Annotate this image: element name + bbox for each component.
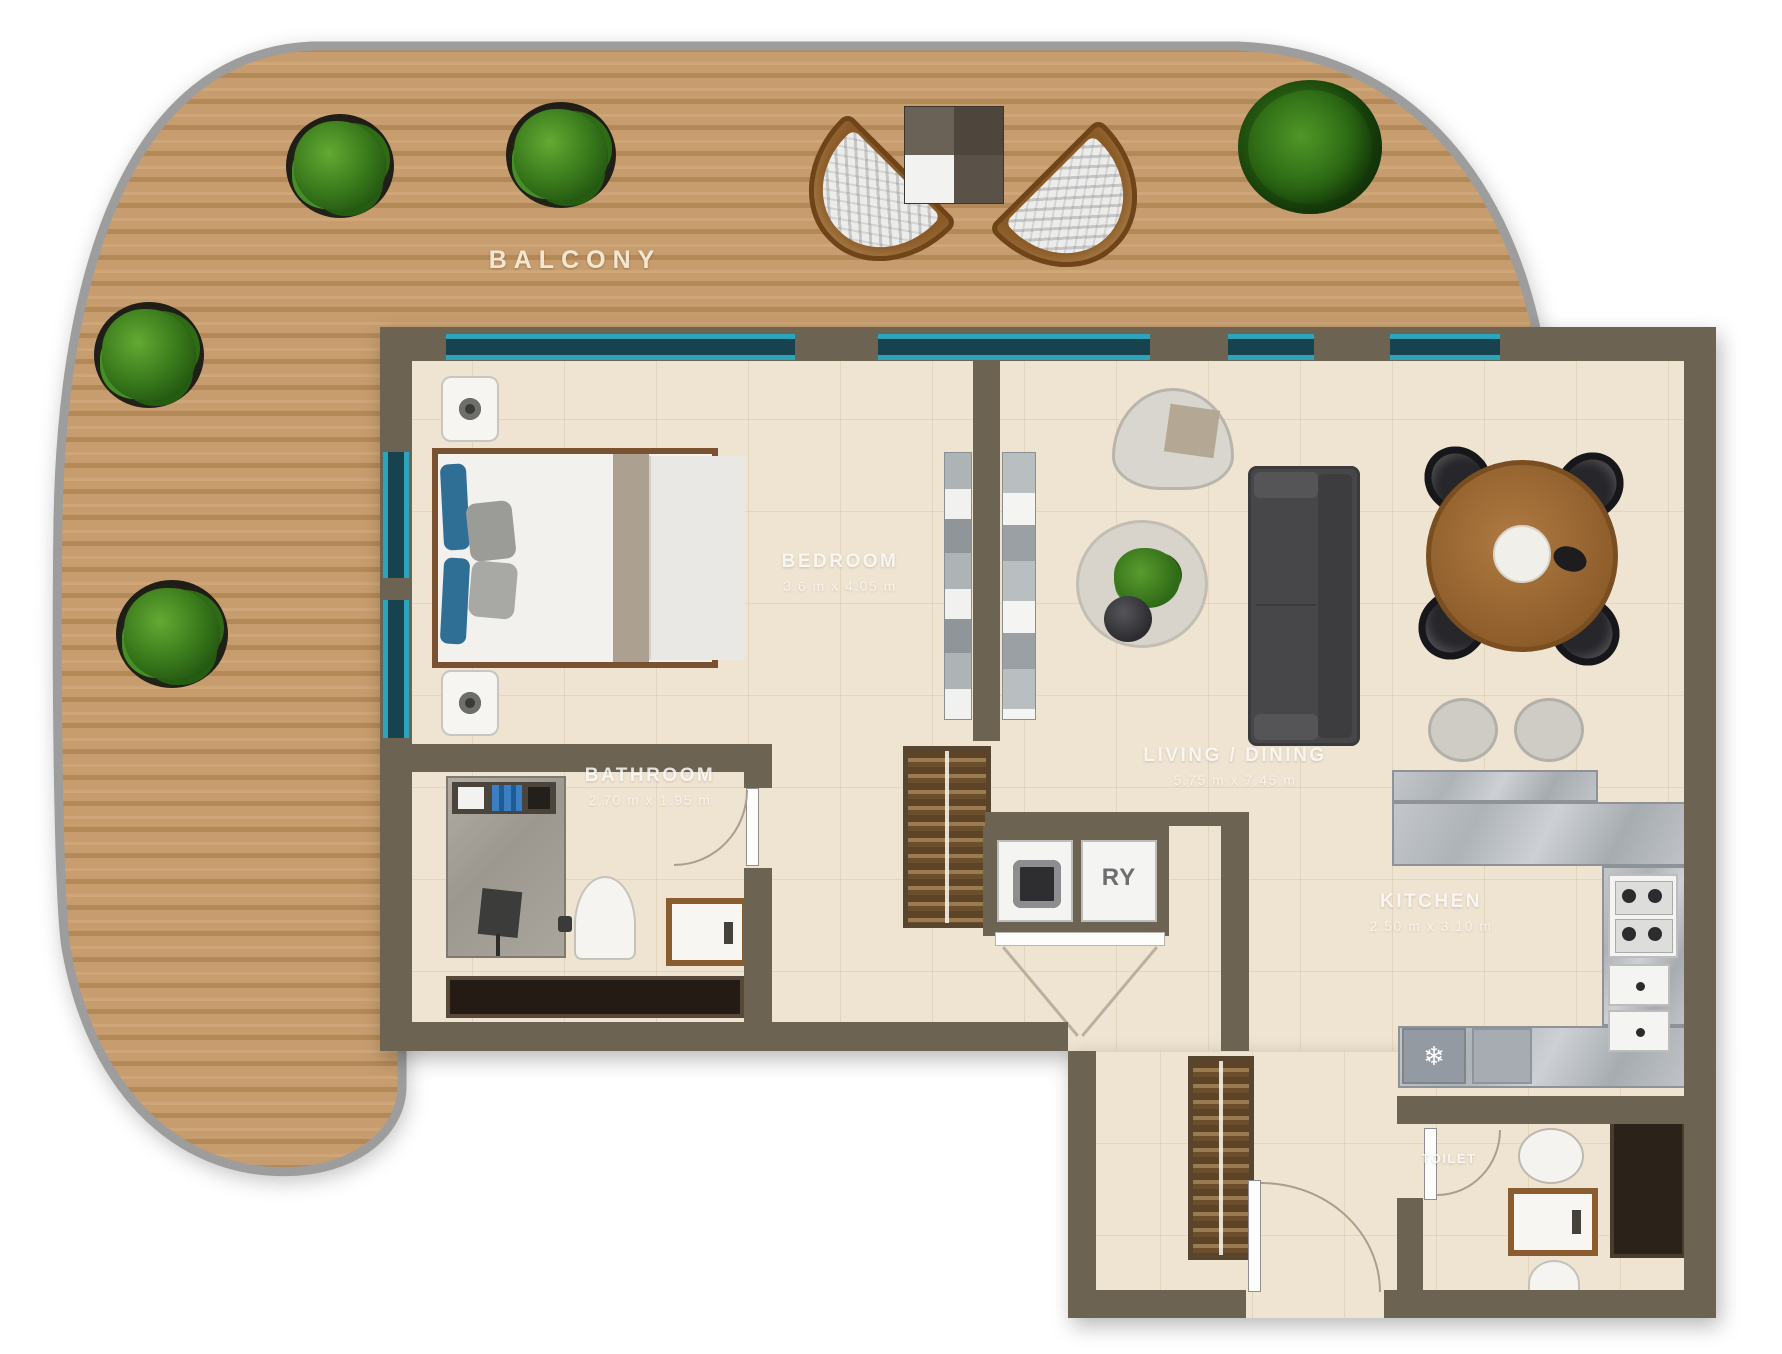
living-name: LIVING / DINING	[1143, 745, 1326, 766]
kitchen-sink	[1608, 1010, 1670, 1052]
bathroom-cabinet	[446, 976, 744, 1018]
wall-bathroom-right	[744, 868, 772, 1022]
tv-console-living-side	[1002, 452, 1036, 720]
pouf	[1104, 596, 1152, 642]
window-living-2	[1228, 334, 1314, 360]
dryer-label: RY	[1083, 864, 1155, 892]
nightstand	[441, 376, 499, 442]
wall-laundry-top	[985, 812, 1249, 826]
potted-plant	[94, 302, 204, 408]
wall-extension-bottom	[1096, 1290, 1246, 1318]
wall-bottom-main	[410, 1022, 1068, 1051]
wall-kitchen-left	[1221, 812, 1249, 1051]
window-bedroom-side	[383, 600, 409, 738]
wall-toilet-left	[1397, 1198, 1423, 1290]
bar-stool	[1428, 698, 1498, 762]
balcony-label: BALCONY	[425, 246, 725, 275]
toilet-name: TOILET	[1422, 1151, 1477, 1166]
bedroom-dims: 3.6 m x 4.05 m	[700, 576, 980, 596]
kitchen-label: KITCHEN 2.50 m x 3.10 m	[1286, 888, 1576, 936]
bedroom-label: BEDROOM 3.6 m x 4.05 m	[700, 548, 980, 596]
dishwasher	[1472, 1028, 1532, 1084]
double-bed	[432, 448, 718, 668]
pillow-blue	[440, 557, 470, 644]
bathroom-vanity-sink	[666, 898, 748, 966]
faucet	[724, 922, 733, 944]
table-bowl	[1550, 542, 1590, 576]
washing-machine	[997, 840, 1073, 922]
pillow-gray	[465, 500, 517, 562]
bar-stool	[1514, 698, 1584, 762]
kitchen-sink	[1608, 964, 1670, 1006]
floor-plan: BALCONY	[0, 0, 1782, 1354]
window-living	[878, 334, 1150, 360]
snowflake-icon: ❄	[1423, 1041, 1445, 1071]
table-plate	[1493, 525, 1551, 583]
bathroom-dims: 2.70 m x 1.95 m	[505, 790, 795, 810]
toilet-flush	[558, 916, 572, 932]
nightstand	[441, 670, 499, 736]
wall-right	[1684, 361, 1716, 1318]
window-bedroom	[446, 334, 795, 360]
living-dims: 5.75 m x 7.45 m	[1090, 770, 1380, 790]
balcony-side-table	[904, 106, 1004, 204]
potted-plant	[286, 114, 394, 218]
toilet-vanity	[1508, 1188, 1598, 1256]
kitchen-name: KITCHEN	[1380, 891, 1482, 912]
sofa-backrest	[1318, 474, 1352, 738]
bedroom-name: BEDROOM	[782, 551, 899, 572]
faucet	[1572, 1210, 1581, 1234]
laundry-shelf	[995, 932, 1165, 946]
living-label: LIVING / DINING 5.75 m x 7.45 m	[1090, 742, 1380, 790]
bathroom-label: BATHROOM 2.70 m x 1.95 m	[505, 762, 795, 810]
toilet-label: TOILET	[1394, 1150, 1504, 1169]
kitchen-bar-counter	[1392, 770, 1598, 802]
large-bush-plant	[1238, 80, 1382, 214]
window-bedroom-side	[383, 452, 409, 578]
sofa-armrest	[1254, 714, 1318, 740]
pillow-gray	[468, 560, 519, 620]
entry-cabinet-louvered	[1188, 1056, 1254, 1260]
bathroom-name: BATHROOM	[585, 765, 715, 786]
window-dining	[1390, 334, 1500, 360]
potted-plant	[506, 102, 616, 208]
shower-head	[478, 888, 523, 938]
sofa-armrest	[1254, 472, 1318, 498]
entrance-door-leaf	[1248, 1180, 1261, 1292]
potted-plant	[116, 580, 228, 688]
wall-toilet-top	[1397, 1096, 1686, 1124]
fridge: ❄	[1402, 1028, 1466, 1084]
wardrobe-louvered	[903, 746, 991, 928]
cooktop	[1608, 874, 1678, 958]
dryer: RY	[1081, 840, 1157, 922]
armchair-cushion	[1164, 404, 1220, 458]
kitchen-dims: 2.50 m x 3.10 m	[1286, 916, 1576, 936]
round-basin	[1518, 1128, 1584, 1184]
wall-extension-left	[1068, 1051, 1096, 1318]
dining-table	[1426, 460, 1618, 652]
sofa	[1248, 466, 1360, 746]
wall-extension-bottom	[1384, 1290, 1684, 1318]
kitchen-counter-top	[1392, 802, 1686, 866]
pillow-blue	[440, 463, 470, 550]
